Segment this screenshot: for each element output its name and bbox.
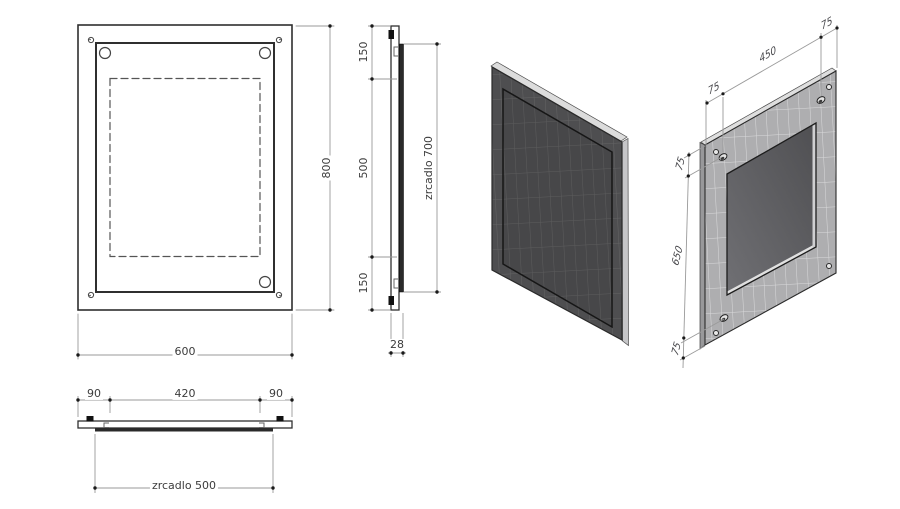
bottom-panel-outline <box>78 421 292 428</box>
iso-front-view <box>491 62 629 346</box>
dim-side-glass-height: zrcadlo 700 <box>423 134 435 202</box>
dim-side-middle: 500 <box>358 156 370 181</box>
dim-side-top: 150 <box>358 40 370 65</box>
front-glass-outline <box>96 43 274 292</box>
bottom-glass-layer <box>95 428 273 432</box>
iso2-left-edge-face <box>700 143 705 350</box>
iso-back-view <box>680 25 839 368</box>
dim-bottom-right: 90 <box>267 388 285 400</box>
dim-front-width: 600 <box>173 346 198 358</box>
front-view <box>76 24 334 359</box>
side-glass-layer <box>400 44 404 292</box>
dim-bottom-center: 420 <box>173 388 198 400</box>
dim-side-thickness: 28 <box>388 339 406 351</box>
drawing-linework <box>0 0 900 509</box>
dim-side-bottom: 150 <box>358 271 370 296</box>
side-panel-outline <box>391 26 399 310</box>
dim-front-height: 800 <box>321 156 333 181</box>
iso1-right-edge-face <box>622 139 629 346</box>
dim-bottom-left: 90 <box>85 388 103 400</box>
technical-drawing-canvas: 600 800 150 500 150 zrcadlo 700 28 90 42… <box>0 0 900 509</box>
dim-bottom-glass-width: zrcadlo 500 <box>150 480 218 492</box>
